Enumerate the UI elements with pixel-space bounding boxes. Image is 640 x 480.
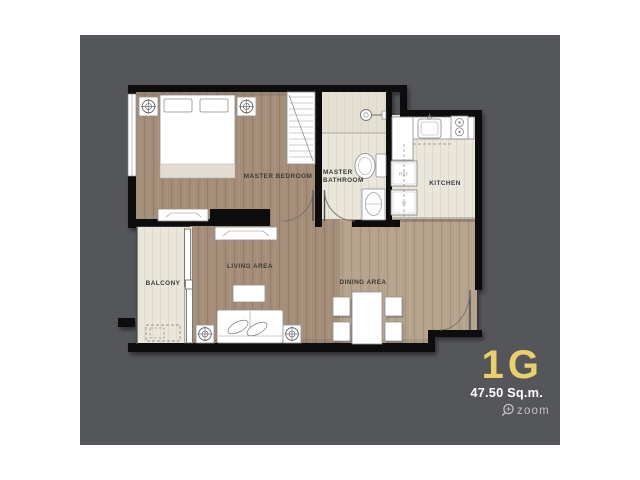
dining-chair xyxy=(385,322,402,341)
master-bathroom-label-line2: BATHROOM xyxy=(323,177,364,184)
wall-right xyxy=(475,110,482,290)
zoom-label: zoom xyxy=(517,405,550,417)
tv-console xyxy=(215,227,277,240)
coffee-table xyxy=(233,285,265,302)
wall-balcony-stub xyxy=(118,318,135,327)
living-area-label: LIVING AREA xyxy=(227,263,273,270)
pillow xyxy=(200,99,228,112)
floorplan: REF W xyxy=(118,85,482,352)
stove xyxy=(451,116,468,139)
dining-table xyxy=(352,292,382,344)
page: REF W xyxy=(0,0,640,480)
wall-bath-bottom xyxy=(352,220,400,227)
wall-bottom xyxy=(128,343,435,352)
wall-bedroom-bath xyxy=(315,92,322,227)
wall-kitchen-top xyxy=(400,110,482,117)
dining-area-label: DINING AREA xyxy=(340,279,387,286)
wardrobe xyxy=(287,92,315,164)
bathroom-sink xyxy=(362,189,385,220)
floorplan-canvas: REF W xyxy=(0,0,640,480)
unit-name: 1G xyxy=(482,343,543,387)
shower-zone xyxy=(322,92,386,133)
dining-chair xyxy=(333,297,350,316)
shadow-strip xyxy=(392,217,475,222)
dining-furniture xyxy=(333,292,404,344)
pillow xyxy=(164,99,192,112)
unit-area: 47.50 Sq.m. xyxy=(470,385,543,400)
bed-blanket xyxy=(160,164,235,178)
wall-entry-bottom xyxy=(428,330,482,337)
master-bedroom-label: MASTER BEDROOM xyxy=(244,173,312,180)
slider-joint xyxy=(186,280,193,289)
kitchen-label: KITCHEN xyxy=(429,180,461,187)
toilet xyxy=(355,154,386,179)
counter-left xyxy=(392,117,413,160)
sofa xyxy=(217,310,283,343)
dining-chair xyxy=(333,322,350,341)
slider-panel xyxy=(185,229,191,286)
dining-chair xyxy=(385,297,402,316)
slider-panel xyxy=(187,287,193,343)
balcony-label: BALCONY xyxy=(146,280,181,287)
wall-top xyxy=(128,85,407,92)
master-bathroom-label-line1: MASTER xyxy=(323,169,353,176)
tv-wall-block xyxy=(210,209,270,226)
wall-left-upper xyxy=(128,85,136,95)
dresser xyxy=(158,209,208,221)
